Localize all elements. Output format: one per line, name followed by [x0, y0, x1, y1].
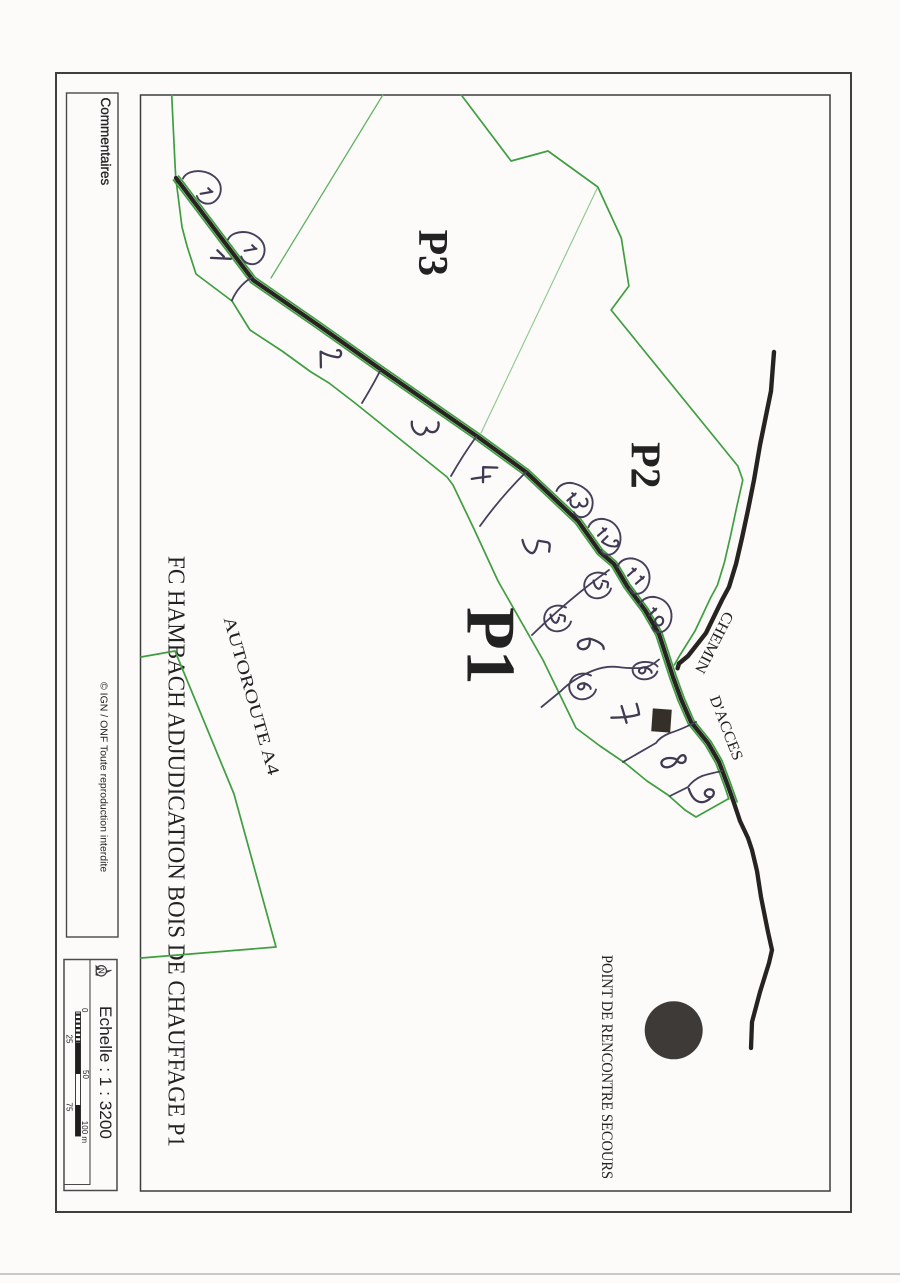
svg-text:Commentaires: Commentaires — [98, 98, 113, 186]
svg-text:N: N — [96, 968, 106, 974]
svg-text:FC HAMBACH ADJUDICATION BOIS D: FC HAMBACH ADJUDICATION BOIS DE CHAUFFAG… — [163, 556, 189, 1147]
svg-text:50: 50 — [81, 1070, 90, 1079]
svg-text:P2: P2 — [622, 442, 668, 489]
svg-text:75: 75 — [65, 1103, 74, 1112]
svg-text:P1: P1 — [452, 607, 529, 685]
svg-text:POINT DE RENCONTRE SECOURS: POINT DE RENCONTRE SECOURS — [598, 955, 615, 1179]
svg-text:25: 25 — [65, 1035, 74, 1044]
svg-text:100 m: 100 m — [80, 1121, 89, 1144]
svg-text:Echelle : 1 : 3200: Echelle : 1 : 3200 — [96, 1006, 115, 1139]
svg-text:P3: P3 — [409, 230, 455, 277]
svg-text:0: 0 — [80, 1008, 89, 1013]
svg-text:© IGN / ONF Toute reproduction: © IGN / ONF Toute reproduction interdite — [98, 682, 110, 872]
